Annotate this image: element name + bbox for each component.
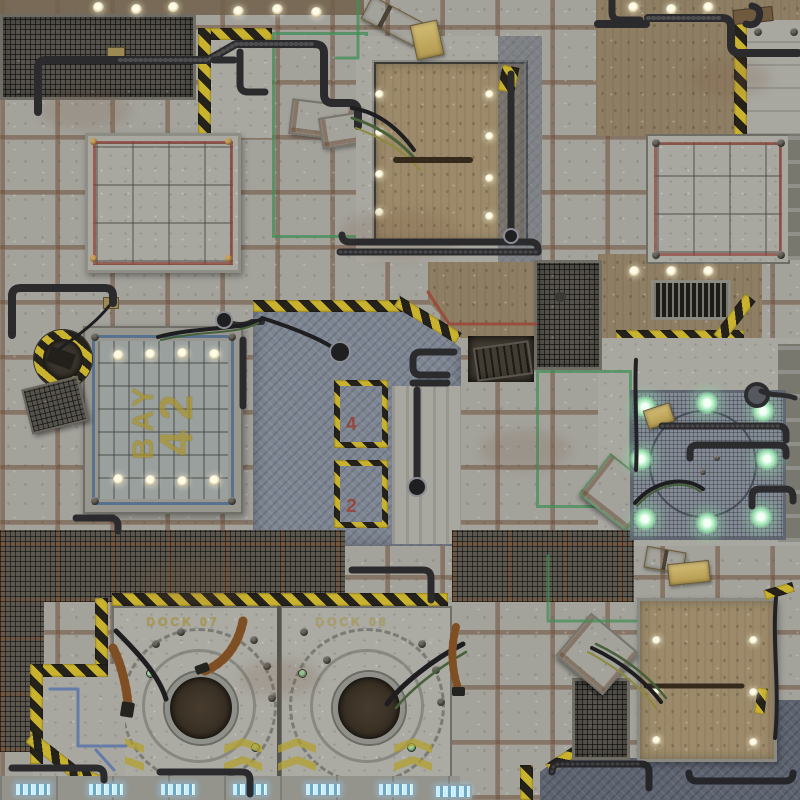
hose-connector (452, 687, 465, 696)
cable-hatch-br-a (592, 648, 661, 702)
pipe-top-left-hook (38, 60, 120, 112)
pipe-service-s (413, 352, 454, 375)
pipe-bay-bottom-elbow (76, 518, 118, 531)
cable-pad-curve (635, 481, 703, 503)
cable-pad-left (635, 360, 636, 470)
cable-hatch-br-c (588, 652, 656, 708)
hose-orange-dock07-a-rib (113, 648, 128, 704)
pipe-j-hook (746, 6, 760, 25)
blue-paint-line (50, 689, 126, 746)
pipes-overlay (0, 0, 800, 800)
hose-orange-dock08-rib (452, 627, 459, 691)
green-paint-line-top (336, 0, 358, 58)
platform-port (330, 342, 350, 362)
pipe-flange (504, 229, 518, 243)
pipe-bottom-b (160, 772, 250, 794)
pipe-drain (761, 391, 795, 398)
pipe-top-right (648, 18, 798, 53)
green-paint-line-bottom-right (548, 556, 636, 621)
cable-pad-curve-green (637, 485, 701, 506)
pipe-strip-hook-a (240, 52, 265, 92)
pipe-dock-top (352, 570, 431, 600)
pipe-top-edge-elbow (612, 0, 640, 20)
pipe-pad-b (690, 445, 786, 458)
game-mat: BAY 42 4 2 (0, 0, 800, 800)
cable-platform-port (262, 318, 336, 350)
hose-connector (120, 701, 135, 718)
pipe-dark-zone-a (552, 764, 649, 788)
pipe-bottom-a (12, 768, 104, 780)
hose-orange-dock07-b-rib (205, 621, 243, 671)
cable-right-edge (775, 598, 777, 738)
pipe-left-mid (12, 288, 113, 335)
pipe-pad-c (752, 489, 793, 506)
service-port (408, 478, 426, 496)
strip-port (216, 312, 232, 328)
pipe-dark-zone-b (689, 773, 793, 781)
red-paint-line-center (428, 292, 536, 324)
cable-into-hole (58, 306, 109, 350)
pipe-pad-a (662, 426, 786, 440)
